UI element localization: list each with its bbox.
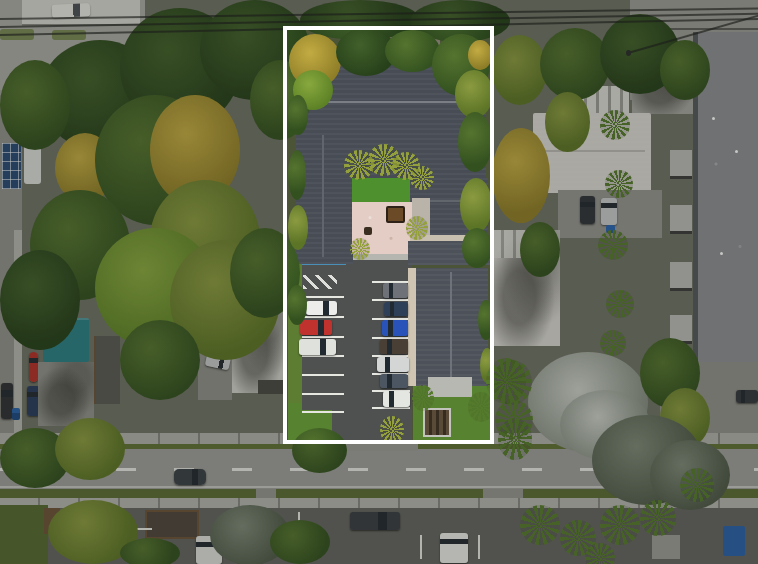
tree-yellow [468,40,492,70]
palm-tree [498,418,532,460]
parking-line [372,299,410,301]
shrub [288,95,308,135]
palm-tree [600,505,640,545]
fire-pit [364,227,372,235]
no-parking-hatch [303,275,337,289]
tree [55,418,125,480]
parked-van-white [383,391,410,407]
shrub [288,150,306,200]
red-kayak [29,352,38,382]
slatted-pergola [423,408,451,437]
patio-table-set [386,206,405,223]
ac-unit [670,150,692,179]
palm-tree [468,392,494,422]
parking-line [302,393,344,395]
ac-unit [670,205,692,234]
solar-panel-array [2,143,21,189]
palm-tree [598,230,628,260]
palm-tree [520,505,560,545]
utility-pole [626,50,631,56]
parking-line [302,336,344,338]
driveway-apron [336,442,418,451]
tree [545,92,590,152]
tree [540,28,610,100]
blue-barrels [12,408,20,420]
roof-vent [735,150,738,153]
dumpster-enclosure [145,510,199,539]
parked-van-white [299,339,336,355]
parked-car-dark [580,196,595,224]
parking-line [302,316,344,318]
parked-car-darkbrown [380,339,408,354]
aerial-photo [0,0,758,564]
tree [270,520,330,564]
shrub [287,285,307,325]
palm-tree [406,216,428,240]
roof-ridge [322,135,324,257]
courtyard-palm [410,166,434,190]
blue-tarp [723,526,745,556]
shrub [288,205,308,250]
ac-unit [670,262,692,291]
parking-line [302,411,344,413]
palm-tree [606,290,634,318]
parked-car-navy [384,302,408,316]
tree [660,40,710,100]
parking-line [420,535,422,559]
tree [455,70,493,118]
annex-wall-strip [408,268,416,386]
concrete-pad [428,377,472,397]
moving-car [174,469,206,485]
parked-car-blue [382,320,408,336]
tree [0,250,80,350]
palm-tree [680,468,714,502]
bottom-left-lawn [0,505,48,564]
annex-roof-lower [416,268,488,386]
tree-yellow [492,128,550,223]
palm-tree [605,170,633,198]
tree [120,538,180,564]
gray-structure [652,535,680,559]
palm-tree [600,110,630,140]
dark-shed [94,336,120,404]
parked-car-dark [736,390,758,403]
courtyard-palm [350,238,370,260]
parked-car-grayblue [380,374,408,388]
house-dark-wing [258,380,286,394]
palm-tree [412,385,434,411]
gray-roof-house [38,362,94,426]
palm-tree [486,358,526,404]
parking-line [372,407,410,409]
parked-car-white [306,301,337,315]
tree [458,112,492,172]
parked-car-white [440,533,468,563]
tree [462,228,492,268]
tree [120,320,200,400]
parking-line [478,535,480,559]
courtyard-turf [352,178,410,204]
roof-vent [712,117,715,120]
tree [0,60,70,150]
parking-line [302,355,344,357]
tree [292,428,347,473]
parked-van-dark [350,512,400,530]
roof-ridge [450,272,452,382]
tree [460,178,492,233]
roof-vent [720,252,723,255]
palm-tree [380,416,404,444]
parked-suv-gray [383,283,408,298]
tree [492,35,547,105]
parked-car-silver [377,357,409,372]
parked-car-silver [601,198,617,225]
shrub [478,300,494,340]
parking-line [302,296,344,298]
tree [520,222,560,277]
parked-car-red [300,320,332,335]
palm-tree [600,330,626,356]
palm-tree [640,500,676,536]
parking-line [302,374,344,376]
